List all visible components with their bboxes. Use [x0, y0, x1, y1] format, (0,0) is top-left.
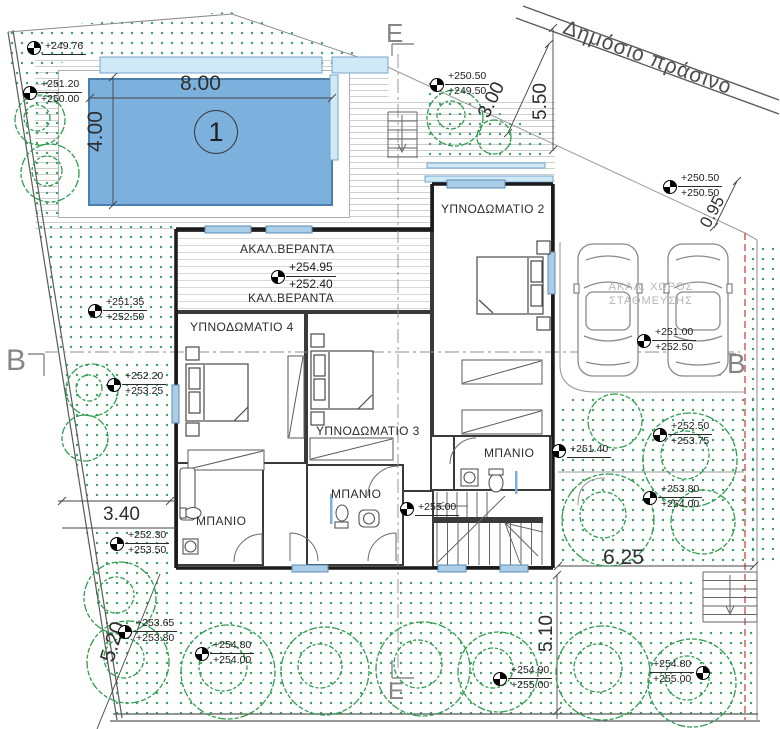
dim-550: 5.50: [530, 83, 552, 120]
label-parking: ΑΚΑΛ. ΧΩΡΟΣ ΣΤΑΘΜΕΥΣΗΣ: [596, 280, 706, 309]
section-e-top: E: [386, 18, 403, 49]
level-marker-6: +251.00+252.50: [652, 326, 696, 355]
pool-number-badge: 1: [194, 110, 238, 154]
level-marker-1: +251.20+250.00: [38, 78, 82, 107]
dim-340: 3.40: [103, 504, 140, 526]
pool-length-dim: 8.00: [180, 72, 221, 96]
section-e-bottom: E: [388, 678, 404, 706]
level-marker-3: +250.50+250.50: [678, 172, 722, 201]
room-bedroom2: [432, 183, 553, 437]
garden-right-edge-strip: [748, 244, 774, 562]
label-bedroom3: ΥΠΝΟΔΩΜΑΤΙΟ 3: [316, 424, 420, 438]
label-bath-mid: ΜΠΑΝΙΟ: [331, 487, 381, 501]
car-1: [574, 244, 642, 376]
level-marker-10: +253.80+254.00: [658, 483, 702, 512]
dim-625: 6.25: [603, 546, 644, 570]
garden-bottom-band: [176, 578, 760, 714]
label-veranda-uncovered: ΑΚΑΛ.ΒΕΡΑΝΤΑ: [240, 242, 334, 256]
level-marker-0: +249.76: [42, 40, 86, 56]
car-2: [664, 244, 732, 376]
garden-top-band: [7, 8, 392, 70]
level-marker-8: +255.00: [415, 501, 459, 517]
level-marker-7: +251.40: [567, 443, 611, 459]
level-marker-14: +254.90+255.00: [508, 664, 552, 693]
section-b-right: B: [727, 348, 746, 380]
room-bath-mid: [306, 464, 404, 566]
level-marker-12: +253.65+253.80: [133, 617, 177, 646]
level-marker-2: +250.50+249.50: [445, 70, 489, 99]
label-bath-right: ΜΠΑΝΙΟ: [484, 446, 534, 460]
room-bedroom4: [176, 312, 306, 464]
label-bedroom4: ΥΠΝΟΔΩΜΑΤΙΟ 4: [190, 320, 294, 334]
dim-510: 5.10: [536, 615, 558, 652]
ext-stairs-pad: [698, 563, 762, 627]
label-bedroom2: ΥΠΝΟΔΩΜΑΤΙΟ 2: [441, 202, 545, 216]
level-marker-5: +252.20+253.25: [122, 370, 166, 399]
level-marker-11: +252.30+253.50: [125, 529, 169, 558]
public-green-label: Δημόσιο πράσινο: [560, 16, 735, 100]
label-veranda-covered: ΚΑΛ.ΒΕΡΑΝΤΑ: [248, 291, 334, 305]
site-floor-plan: 8.00 4.00 1 Δημόσιο πράσινο 3.00 5.50 0.…: [0, 0, 780, 729]
garden-left-mid: [36, 222, 176, 348]
label-bath-left: ΜΠΑΝΙΟ: [196, 514, 246, 528]
garden-right: [558, 395, 755, 565]
pool-width-dim: 4.00: [84, 111, 108, 152]
section-b-left: B: [6, 344, 26, 378]
level-marker-15: +254.80+255.00: [650, 658, 694, 687]
level-marker-4: +251.35+252.50: [103, 296, 147, 325]
level-marker-13: +254.80+254.00: [210, 639, 254, 668]
level-veranda: +254.95 +252.40: [286, 260, 336, 293]
level-marker-9: +252.50+253.75: [668, 420, 712, 449]
